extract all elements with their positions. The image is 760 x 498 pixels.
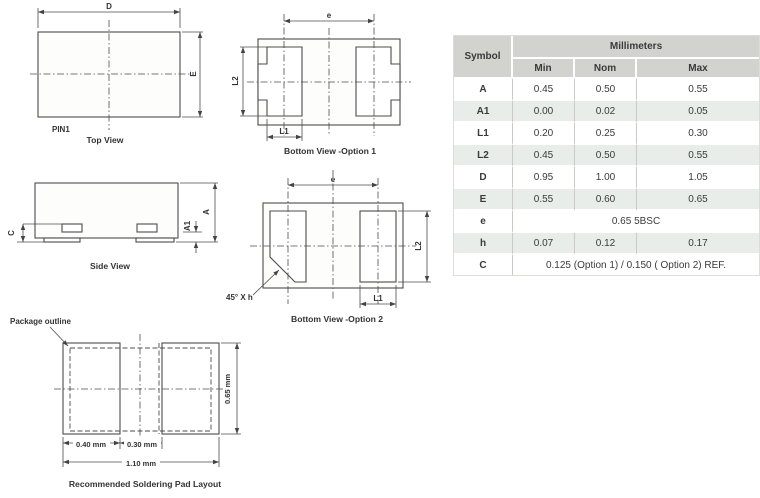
symbol-header: Symbol	[454, 36, 513, 79]
cell-nom: 0.60	[575, 189, 637, 211]
table-row: L2 0.45 0.50 0.55	[454, 145, 759, 167]
table-row: D 0.95 1.00 1.05	[454, 167, 759, 189]
cell-span-value: 0.65 5BSC	[513, 211, 759, 233]
col-header-min: Min	[513, 59, 575, 79]
cell-min: 0.00	[513, 101, 575, 123]
cell-min: 0.20	[513, 123, 575, 145]
cell-min: 0.95	[513, 167, 575, 189]
cell-nom: 1.00	[575, 167, 637, 189]
cell-nom: 0.50	[575, 79, 637, 101]
table-row: e 0.65 5BSC	[454, 211, 759, 233]
col-header-nom: Nom	[575, 59, 637, 79]
table-row: L1 0.20 0.25 0.30	[454, 123, 759, 145]
cell-nom: 0.02	[575, 101, 637, 123]
cell-symbol: E	[454, 189, 513, 211]
cell-symbol: h	[454, 233, 513, 255]
table-row: A 0.45 0.50 0.55	[454, 79, 759, 101]
cell-symbol: C	[454, 255, 513, 275]
cell-min: 0.45	[513, 145, 575, 167]
dim-pad-width: 0.40 mm	[76, 440, 106, 449]
cell-symbol: e	[454, 211, 513, 233]
cell-nom: 0.12	[575, 233, 637, 255]
cell-symbol: D	[454, 167, 513, 189]
cell-max: 0.55	[637, 79, 759, 101]
package-outline-label: Package outline	[10, 317, 71, 326]
cell-max: 0.17	[637, 233, 759, 255]
table-row: C 0.125 (Option 1) / 0.150 ( Option 2) R…	[454, 255, 759, 275]
cell-symbol: A	[454, 79, 513, 101]
cell-max: 0.30	[637, 123, 759, 145]
cell-max: 1.05	[637, 167, 759, 189]
dimensions-table: Symbol Millimeters Min Nom Max A 0.45 0.…	[453, 35, 760, 276]
dim-height: 0.65 mm	[223, 374, 232, 404]
pad-layout-title: Recommended Soldering Pad Layout	[69, 479, 221, 489]
cell-min: 0.55	[513, 189, 575, 211]
cell-max: 0.65	[637, 189, 759, 211]
cell-max: 0.55	[637, 145, 759, 167]
cell-max: 0.05	[637, 101, 759, 123]
cell-min: 0.07	[513, 233, 575, 255]
dim-gap: 0.30 mm	[127, 440, 157, 449]
cell-nom: 0.25	[575, 123, 637, 145]
cell-symbol: L1	[454, 123, 513, 145]
pad-layout-shapes	[54, 334, 226, 445]
cell-min: 0.45	[513, 79, 575, 101]
col-header-max: Max	[637, 59, 759, 79]
table-row: A1 0.00 0.02 0.05	[454, 101, 759, 123]
cell-symbol: L2	[454, 145, 513, 167]
cell-symbol: A1	[454, 101, 513, 123]
table-row: h 0.07 0.12 0.17	[454, 233, 759, 255]
units-header: Millimeters	[513, 36, 759, 59]
cell-nom: 0.50	[575, 145, 637, 167]
table-row: E 0.55 0.60 0.65	[454, 189, 759, 211]
cell-span-value: 0.125 (Option 1) / 0.150 ( Option 2) REF…	[513, 255, 759, 275]
package-drawing-page: D E PIN1 Top View e L2 L1 Bottom View -O…	[0, 0, 760, 498]
dim-total-width: 1.10 mm	[126, 459, 156, 468]
